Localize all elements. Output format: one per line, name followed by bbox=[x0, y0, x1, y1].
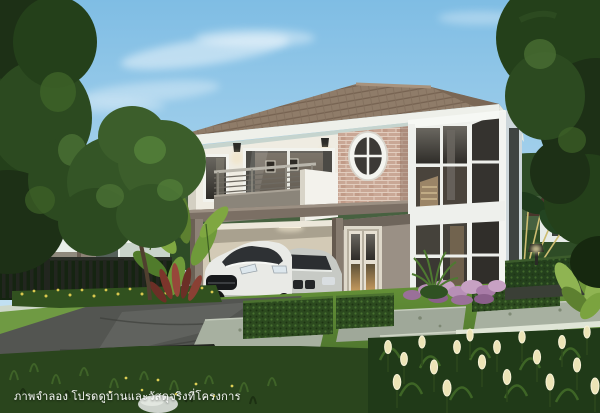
stone-accent-wall bbox=[338, 126, 410, 210]
boxwood-hedge bbox=[243, 297, 333, 339]
boxwood-hedge bbox=[336, 294, 394, 329]
white-tulip-bed bbox=[368, 326, 600, 413]
rendering-root: ภาพจำลอง โปรดดูบ้านและวัสดุจริงที่โครงกา… bbox=[0, 0, 600, 413]
oval-window bbox=[349, 132, 387, 180]
scene-svg: ภาพจำลอง โปรดดูบ้านและวัสดุจริงที่โครงกา… bbox=[0, 0, 600, 413]
door-glass-glow bbox=[351, 264, 360, 292]
disclaimer-caption: ภาพจำลอง โปรดดูบ้านและวัสดุจริงที่โครงกา… bbox=[14, 388, 241, 403]
